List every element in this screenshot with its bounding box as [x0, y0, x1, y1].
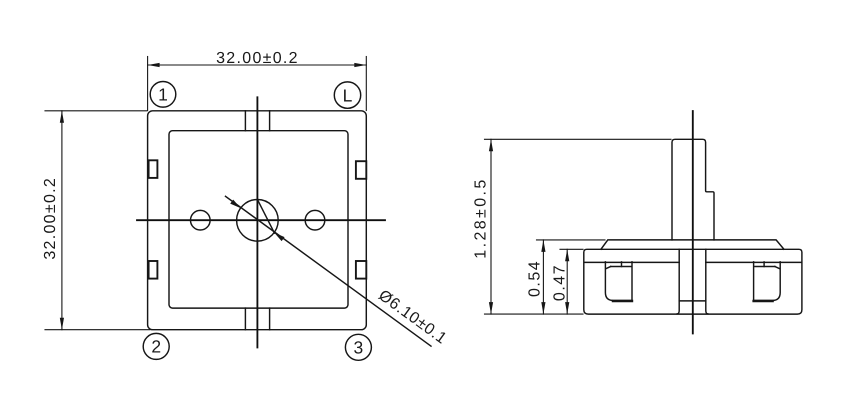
svg-text:L: L	[343, 85, 353, 105]
svg-text:0.47: 0.47	[552, 264, 569, 301]
svg-text:3: 3	[354, 338, 364, 358]
svg-text:32.00±0.2: 32.00±0.2	[216, 50, 299, 67]
svg-text:32.00±0.2: 32.00±0.2	[42, 177, 59, 260]
svg-text:2: 2	[151, 337, 161, 357]
svg-text:Ø6.10±0.1: Ø6.10±0.1	[375, 287, 450, 348]
svg-text:1.28±0.5: 1.28±0.5	[473, 177, 490, 258]
svg-text:1: 1	[158, 85, 168, 105]
svg-text:0.54: 0.54	[527, 260, 544, 297]
